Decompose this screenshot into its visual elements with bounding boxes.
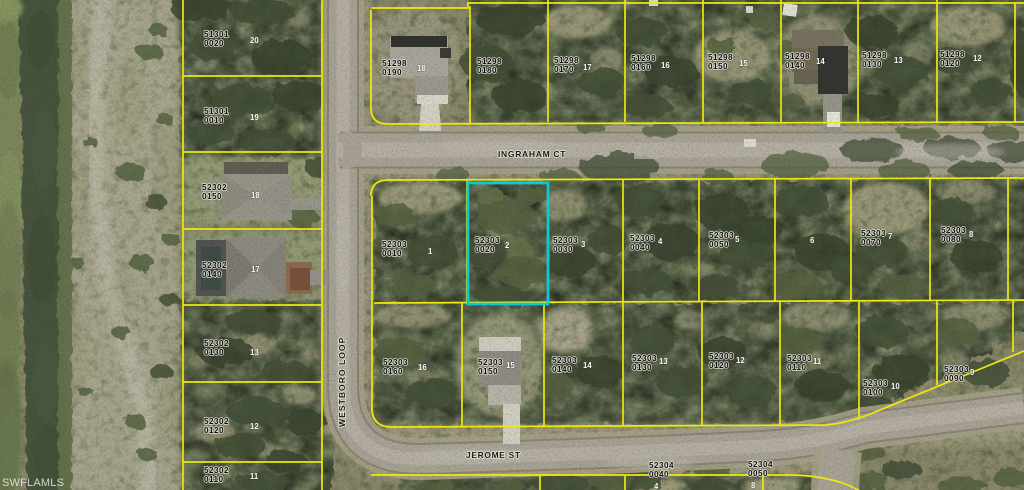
svg-text:52303: 52303 bbox=[863, 379, 888, 388]
svg-text:3: 3 bbox=[581, 240, 586, 249]
svg-text:52303: 52303 bbox=[552, 356, 577, 365]
svg-text:52303: 52303 bbox=[478, 358, 503, 367]
svg-text:15: 15 bbox=[739, 59, 748, 68]
svg-text:0160: 0160 bbox=[631, 63, 651, 72]
svg-text:0150: 0150 bbox=[708, 62, 728, 71]
svg-text:0120: 0120 bbox=[709, 361, 729, 370]
svg-text:4: 4 bbox=[654, 482, 659, 490]
svg-text:0130: 0130 bbox=[632, 363, 652, 372]
svg-text:8: 8 bbox=[969, 230, 974, 239]
svg-text:52303: 52303 bbox=[944, 365, 969, 374]
svg-text:0040: 0040 bbox=[649, 470, 669, 479]
svg-text:51298: 51298 bbox=[477, 57, 502, 66]
svg-text:52302: 52302 bbox=[204, 466, 229, 475]
svg-text:52303: 52303 bbox=[861, 229, 886, 238]
svg-text:0180: 0180 bbox=[477, 66, 497, 75]
svg-text:15: 15 bbox=[506, 361, 515, 370]
svg-text:12: 12 bbox=[736, 356, 745, 365]
svg-text:52303: 52303 bbox=[941, 226, 966, 235]
svg-text:11: 11 bbox=[250, 472, 259, 481]
svg-text:52302: 52302 bbox=[202, 183, 227, 192]
svg-text:0010: 0010 bbox=[204, 116, 224, 125]
svg-text:52303: 52303 bbox=[709, 231, 734, 240]
svg-text:13: 13 bbox=[894, 56, 903, 65]
svg-text:0150: 0150 bbox=[478, 367, 498, 376]
svg-text:0080: 0080 bbox=[941, 235, 961, 244]
svg-text:11: 11 bbox=[813, 357, 822, 366]
svg-text:52304: 52304 bbox=[649, 461, 674, 470]
svg-text:0040: 0040 bbox=[630, 243, 650, 252]
svg-text:10: 10 bbox=[891, 382, 900, 391]
svg-text:14: 14 bbox=[583, 361, 592, 370]
svg-text:0140: 0140 bbox=[202, 270, 222, 279]
svg-text:52303: 52303 bbox=[382, 240, 407, 249]
svg-text:51298: 51298 bbox=[708, 53, 733, 62]
svg-text:13: 13 bbox=[659, 357, 668, 366]
svg-text:17: 17 bbox=[251, 265, 260, 274]
svg-text:51301: 51301 bbox=[204, 107, 229, 116]
svg-text:0170: 0170 bbox=[554, 65, 574, 74]
svg-text:INGRAHAM CT: INGRAHAM CT bbox=[498, 149, 566, 159]
svg-text:20: 20 bbox=[250, 36, 259, 45]
svg-text:16: 16 bbox=[661, 61, 670, 70]
svg-text:0020: 0020 bbox=[204, 39, 224, 48]
svg-text:51298: 51298 bbox=[554, 56, 579, 65]
svg-text:14: 14 bbox=[816, 57, 825, 66]
svg-text:0110: 0110 bbox=[204, 475, 224, 484]
svg-text:52303: 52303 bbox=[383, 358, 408, 367]
svg-text:0130: 0130 bbox=[862, 60, 882, 69]
svg-text:51298: 51298 bbox=[862, 51, 887, 60]
svg-text:51298: 51298 bbox=[940, 50, 965, 59]
svg-text:52303: 52303 bbox=[632, 354, 657, 363]
svg-text:2: 2 bbox=[505, 241, 510, 250]
svg-text:0120: 0120 bbox=[940, 59, 960, 68]
svg-text:0140: 0140 bbox=[552, 365, 572, 374]
svg-text:52302: 52302 bbox=[204, 417, 229, 426]
svg-text:16: 16 bbox=[418, 363, 427, 372]
svg-text:1: 1 bbox=[428, 247, 433, 256]
svg-text:52303: 52303 bbox=[709, 352, 734, 361]
svg-text:0010: 0010 bbox=[382, 249, 402, 258]
svg-text:WESTBORO LOOP: WESTBORO LOOP bbox=[337, 337, 347, 427]
svg-text:0120: 0120 bbox=[204, 426, 224, 435]
svg-text:0050: 0050 bbox=[748, 469, 768, 478]
svg-text:52303: 52303 bbox=[553, 236, 578, 245]
svg-text:0090: 0090 bbox=[944, 374, 964, 383]
svg-text:19: 19 bbox=[250, 113, 259, 122]
svg-text:5: 5 bbox=[735, 235, 740, 244]
svg-text:0110: 0110 bbox=[787, 363, 807, 372]
svg-text:0150: 0150 bbox=[202, 192, 222, 201]
svg-text:18: 18 bbox=[251, 191, 260, 200]
svg-text:0140: 0140 bbox=[785, 61, 805, 70]
svg-text:51298: 51298 bbox=[382, 59, 407, 68]
svg-text:SWFLAMLS: SWFLAMLS bbox=[2, 477, 64, 489]
svg-text:51298: 51298 bbox=[785, 52, 810, 61]
svg-text:0160: 0160 bbox=[383, 367, 403, 376]
svg-text:52303: 52303 bbox=[630, 234, 655, 243]
svg-text:0190: 0190 bbox=[382, 68, 402, 77]
svg-text:0070: 0070 bbox=[861, 238, 881, 247]
svg-text:4: 4 bbox=[658, 237, 663, 246]
svg-text:7: 7 bbox=[888, 232, 892, 241]
svg-text:52303: 52303 bbox=[787, 354, 812, 363]
svg-text:18: 18 bbox=[417, 64, 426, 73]
svg-text:9: 9 bbox=[970, 368, 975, 377]
svg-text:0100: 0100 bbox=[863, 388, 883, 397]
svg-text:0020: 0020 bbox=[475, 245, 495, 254]
svg-text:0130: 0130 bbox=[204, 348, 224, 357]
svg-text:17: 17 bbox=[583, 63, 592, 72]
svg-text:8: 8 bbox=[751, 481, 756, 490]
svg-text:51301: 51301 bbox=[204, 30, 229, 39]
svg-text:52302: 52302 bbox=[204, 339, 229, 348]
svg-text:12: 12 bbox=[250, 422, 259, 431]
svg-text:51298: 51298 bbox=[631, 54, 656, 63]
svg-text:0050: 0050 bbox=[709, 240, 729, 249]
svg-text:52304: 52304 bbox=[748, 460, 773, 469]
svg-text:6: 6 bbox=[810, 236, 815, 245]
svg-text:JEROME ST: JEROME ST bbox=[466, 450, 521, 460]
svg-text:13: 13 bbox=[250, 348, 259, 357]
svg-text:0030: 0030 bbox=[553, 245, 573, 254]
svg-text:52303: 52303 bbox=[475, 236, 500, 245]
svg-text:52302: 52302 bbox=[202, 261, 227, 270]
svg-text:12: 12 bbox=[973, 54, 982, 63]
